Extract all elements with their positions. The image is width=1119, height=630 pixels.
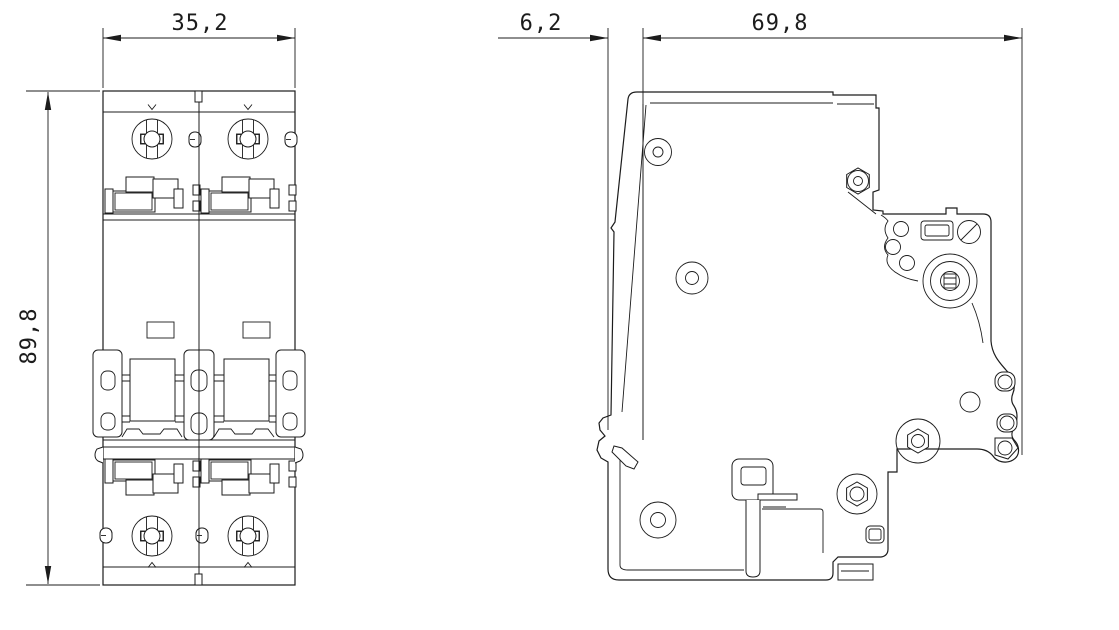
- toggle-post-right: [276, 350, 305, 437]
- top-center-notch: [195, 91, 202, 102]
- arrowhead: [643, 35, 661, 41]
- arrowhead: [590, 35, 608, 41]
- toggle-lever-pole2: [224, 359, 269, 421]
- front-width-dimension: 35,2: [103, 11, 295, 88]
- slider-blade: [758, 494, 797, 500]
- front-height-label: 89,8: [17, 308, 42, 365]
- arrowhead: [45, 566, 51, 584]
- side-rail-offset-label: 6,2: [520, 11, 563, 36]
- bottom-center-notch: [195, 574, 202, 585]
- toggle-post-left: [93, 350, 122, 437]
- clip-bottom-left: [100, 528, 112, 543]
- clip-top-right: [285, 132, 297, 147]
- front-width-label: 35,2: [172, 11, 229, 36]
- collar-step-right: [295, 447, 303, 463]
- arrowhead: [277, 35, 295, 41]
- arrowhead: [1004, 35, 1022, 41]
- arrowhead: [45, 92, 51, 110]
- circuit-breaker-dimension-drawing: 35,2 89,8: [0, 0, 1119, 630]
- arrowhead: [103, 35, 121, 41]
- clip-bottom-right: [196, 528, 208, 543]
- toggle-lever-pole1: [130, 359, 175, 421]
- front-height-dimension: 89,8: [17, 91, 100, 585]
- collar-step-left: [95, 447, 103, 463]
- front-view: [93, 91, 305, 585]
- technical-drawing-page: 35,2 89,8: [0, 0, 1119, 630]
- side-depth-label: 69,8: [752, 11, 809, 36]
- side-view: [597, 92, 1019, 580]
- slider-channel: [746, 500, 760, 577]
